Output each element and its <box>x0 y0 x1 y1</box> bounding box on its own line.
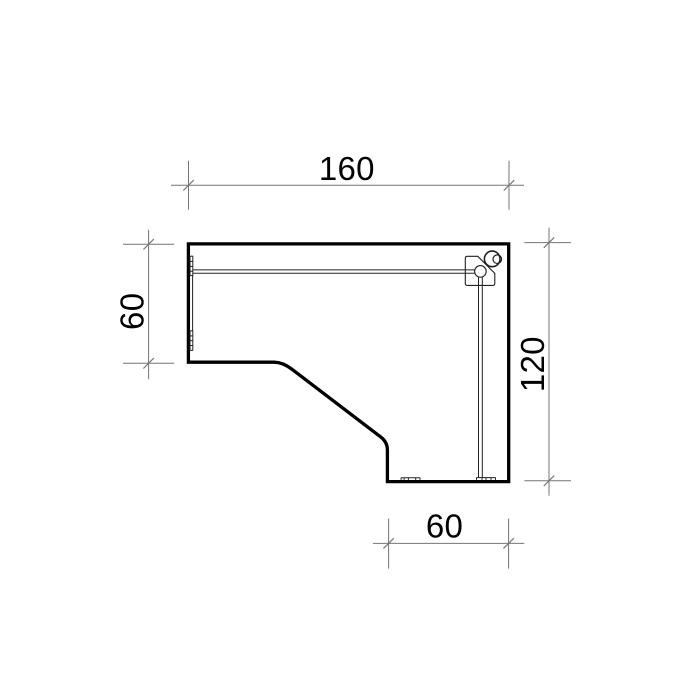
svg-text:60: 60 <box>426 507 463 544</box>
svg-text:160: 160 <box>319 150 375 187</box>
svg-text:120: 120 <box>514 336 551 392</box>
svg-text:60: 60 <box>114 293 151 330</box>
